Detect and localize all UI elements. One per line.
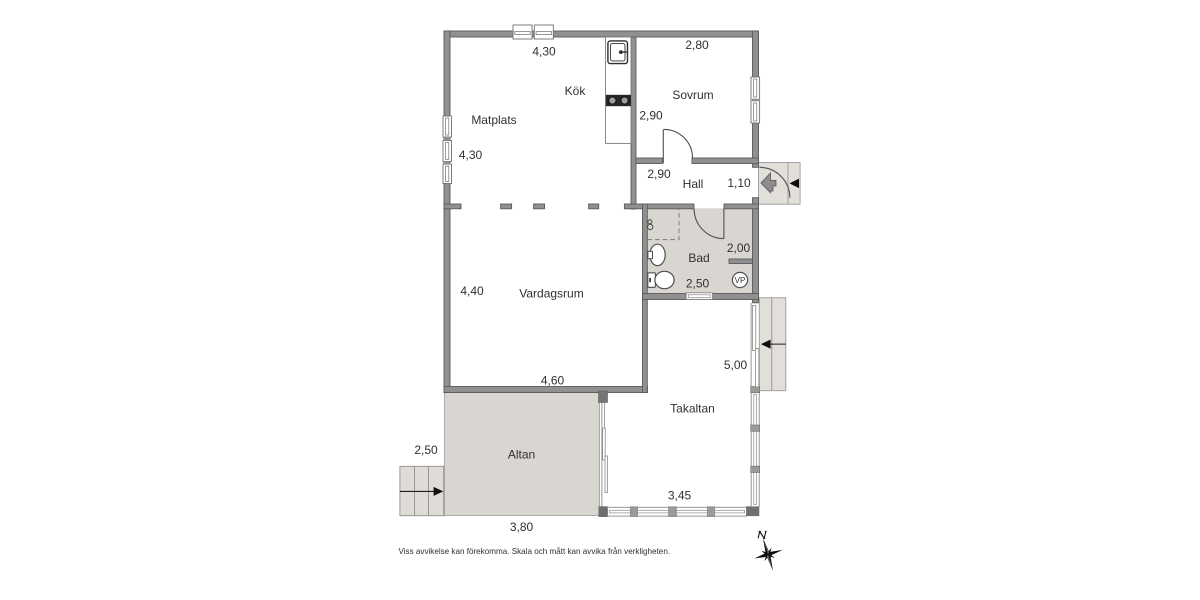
svg-text:2,50: 2,50: [414, 443, 438, 457]
svg-text:3,80: 3,80: [510, 520, 534, 534]
svg-text:4,30: 4,30: [459, 148, 483, 162]
svg-text:4,60: 4,60: [541, 374, 565, 388]
svg-text:2,90: 2,90: [639, 109, 663, 123]
svg-text:5,00: 5,00: [724, 358, 748, 372]
svg-text:1,10: 1,10: [727, 176, 751, 190]
svg-text:Kök: Kök: [565, 84, 587, 98]
svg-text:Vardagsrum: Vardagsrum: [519, 287, 583, 301]
svg-text:2,50: 2,50: [686, 277, 710, 291]
svg-text:Hall: Hall: [683, 177, 704, 191]
svg-text:Altan: Altan: [508, 448, 535, 462]
svg-text:4,30: 4,30: [532, 45, 556, 59]
svg-text:Sovrum: Sovrum: [672, 88, 713, 102]
svg-text:Takaltan: Takaltan: [670, 402, 715, 416]
svg-text:Matplats: Matplats: [471, 113, 516, 127]
svg-text:Bad: Bad: [688, 251, 709, 265]
svg-text:2,90: 2,90: [647, 167, 671, 181]
svg-text:2,00: 2,00: [727, 241, 751, 255]
svg-text:2,80: 2,80: [685, 38, 709, 52]
svg-text:3,45: 3,45: [668, 489, 692, 503]
svg-text:VP: VP: [735, 276, 746, 285]
svg-text:4,40: 4,40: [460, 284, 484, 298]
svg-text:Viss avvikelse kan förekomma.: Viss avvikelse kan förekomma. Skala och …: [399, 547, 671, 556]
